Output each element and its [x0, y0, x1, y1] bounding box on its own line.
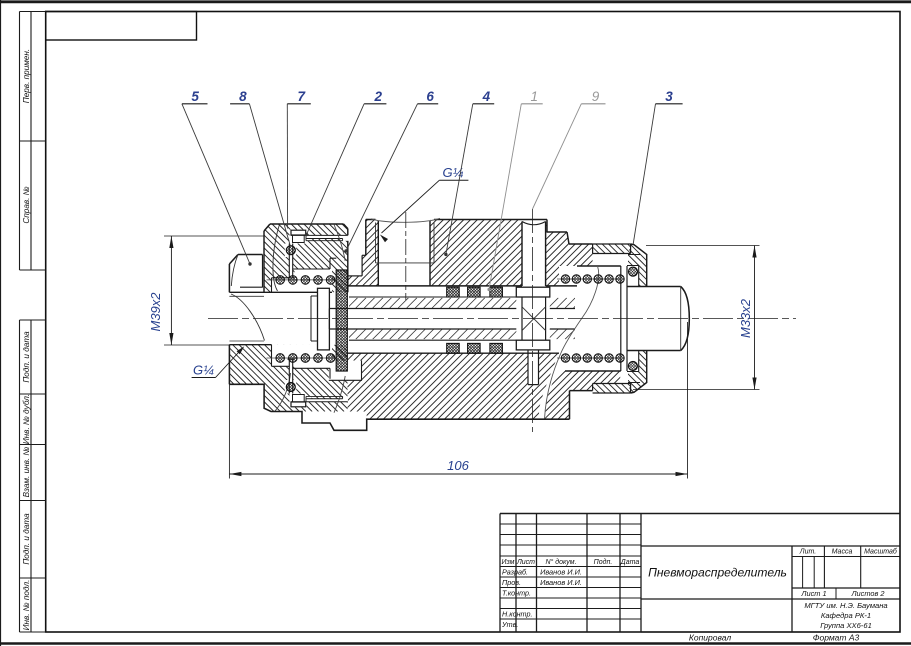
svg-text:Перв. примен.: Перв. примен. [22, 49, 31, 103]
svg-text:Копировал: Копировал [689, 633, 731, 643]
svg-text:Дата: Дата [620, 559, 640, 566]
svg-text:Лит.: Лит. [799, 549, 816, 556]
svg-text:Масштаб: Масштаб [864, 548, 898, 556]
svg-text:Лист: Лист [516, 559, 535, 566]
svg-text:G¼: G¼ [193, 363, 214, 378]
svg-text:3: 3 [665, 89, 673, 104]
svg-text:4: 4 [482, 89, 491, 104]
svg-text:5: 5 [191, 89, 199, 104]
svg-text:Формат А3: Формат А3 [813, 633, 860, 643]
svg-text:Пров.: Пров. [502, 578, 521, 587]
svg-text:Иванов И.И.: Иванов И.И. [540, 568, 582, 577]
svg-text:Утв.: Утв. [501, 620, 518, 629]
svg-text:Листов 2: Листов 2 [850, 589, 884, 598]
svg-text:106: 106 [447, 458, 469, 473]
svg-text:M39х2: M39х2 [148, 292, 163, 332]
svg-text:Т.контр.: Т.контр. [502, 589, 531, 598]
svg-text:Инв. № дубл.: Инв. № дубл. [22, 394, 31, 444]
svg-text:Подп.: Подп. [594, 558, 613, 566]
svg-text:9: 9 [592, 89, 600, 104]
svg-text:Справ. №: Справ. № [22, 186, 31, 223]
svg-text:Группа ХХ6-61: Группа ХХ6-61 [820, 621, 872, 630]
svg-text:6: 6 [426, 89, 434, 104]
svg-text:Подп. и дата: Подп. и дата [22, 331, 31, 383]
svg-text:Лист 1: Лист 1 [800, 589, 826, 598]
svg-text:Масса: Масса [832, 549, 853, 556]
svg-text:Иванов И.И.: Иванов И.И. [540, 578, 582, 587]
svg-text:Н.контр.: Н.контр. [502, 610, 532, 619]
svg-text:Подп. и дата: Подп. и дата [22, 513, 31, 565]
svg-text:8: 8 [239, 89, 247, 104]
svg-text:M33х2: M33х2 [738, 298, 753, 338]
svg-text:Инв. № подл.: Инв. № подл. [22, 580, 31, 631]
svg-text:Пневмораспределитель: Пневмораспределитель [648, 566, 787, 580]
svg-text:1: 1 [530, 89, 538, 104]
svg-text:2: 2 [373, 89, 382, 104]
svg-text:Взам. инв. №: Взам. инв. № [22, 447, 31, 498]
svg-text:Кафедра РК-1: Кафедра РК-1 [821, 611, 871, 620]
svg-text:N° докум.: N° докум. [545, 558, 576, 566]
svg-text:МГТУ им. Н.Э. Баумана: МГТУ им. Н.Э. Баумана [804, 601, 887, 610]
svg-text:Изм: Изм [502, 559, 515, 566]
svg-text:Разраб.: Разраб. [502, 568, 528, 577]
